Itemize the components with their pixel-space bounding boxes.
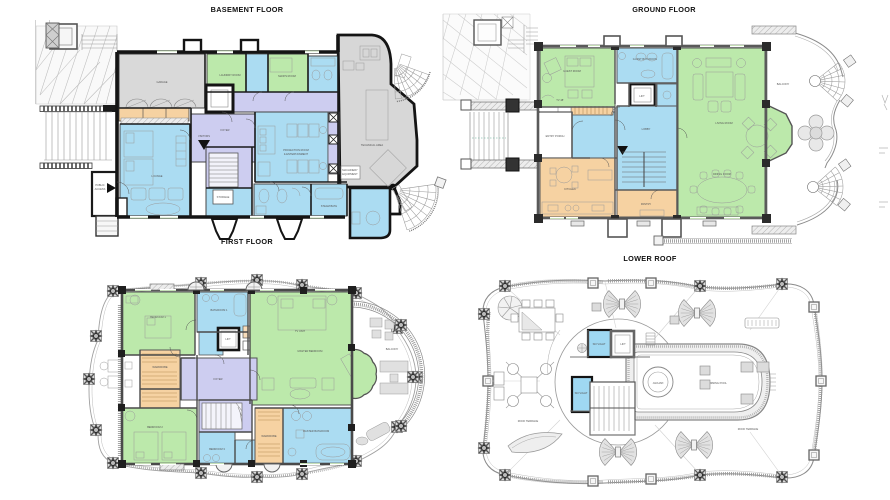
svg-text:TECHNICAL AREA: TECHNICAL AREA xyxy=(361,143,384,147)
svg-text:BATHROOM 1: BATHROOM 1 xyxy=(211,308,229,312)
svg-text:GROUND FLOOR: GROUND FLOOR xyxy=(632,5,696,14)
svg-text:GUEST ROOM: GUEST ROOM xyxy=(563,69,581,73)
svg-text:LOBBY: LOBBY xyxy=(642,127,651,131)
svg-text:ENTRY PORCH: ENTRY PORCH xyxy=(546,134,565,138)
svg-text:PANTRY: PANTRY xyxy=(641,202,652,206)
svg-text:KITCHEN: KITCHEN xyxy=(564,187,576,191)
svg-text:MASTER BATHROOM: MASTER BATHROOM xyxy=(303,429,329,433)
svg-text:SKYLIGHT: SKYLIGHT xyxy=(575,391,588,395)
svg-text:STORAGE: STORAGE xyxy=(217,195,230,199)
svg-text:ACCESS: ACCESS xyxy=(95,187,106,191)
svg-text:SKYLIGHT: SKYLIGHT xyxy=(593,342,606,346)
svg-text:TV 48': TV 48' xyxy=(556,98,564,102)
svg-text:LAUNDRY ROOM: LAUNDRY ROOM xyxy=(219,73,240,77)
svg-text:VISITORS: VISITORS xyxy=(198,134,210,138)
svg-text:WARDROBE: WARDROBE xyxy=(152,365,167,369)
svg-text:MAID'S ROOM: MAID'S ROOM xyxy=(278,74,296,78)
svg-text:ROOF TERRACE: ROOF TERRACE xyxy=(518,419,539,423)
svg-text:TV UNIT: TV UNIT xyxy=(295,329,306,333)
svg-text:& ENTERTAINMENT: & ENTERTAINMENT xyxy=(284,152,309,156)
svg-text:JACUZZI: JACUZZI xyxy=(653,381,664,385)
svg-text:BEDROOM 2: BEDROOM 2 xyxy=(147,425,163,429)
svg-text:PROJECTION ROOM: PROJECTION ROOM xyxy=(283,148,309,152)
svg-text:BEDROOM 3: BEDROOM 3 xyxy=(209,447,225,451)
svg-text:MACHINERY: MACHINERY xyxy=(342,168,358,172)
svg-text:BALCONY: BALCONY xyxy=(386,347,399,351)
svg-text:EQUIPMENT: EQUIPMENT xyxy=(342,172,358,176)
svg-text:ROOF TERRACE: ROOF TERRACE xyxy=(738,427,759,431)
svg-text:PUBLIC: PUBLIC xyxy=(95,183,104,187)
svg-text:DINING ROOM: DINING ROOM xyxy=(713,172,731,176)
svg-text:BEDROOM 1: BEDROOM 1 xyxy=(150,315,166,319)
svg-text:WARDROBE: WARDROBE xyxy=(261,434,276,438)
svg-text:FOYER: FOYER xyxy=(221,128,230,132)
svg-text:GARAGE: GARAGE xyxy=(156,80,167,84)
svg-text:LIFT: LIFT xyxy=(225,337,231,341)
svg-text:MASTER BEDROOM: MASTER BEDROOM xyxy=(298,349,323,353)
svg-text:LIFT: LIFT xyxy=(639,94,645,98)
svg-text:BALCONY: BALCONY xyxy=(777,82,790,86)
svg-text:LOWER ROOF: LOWER ROOF xyxy=(623,254,677,263)
svg-text:BASEMENT FLOOR: BASEMENT FLOOR xyxy=(211,5,284,14)
svg-text:FOYER: FOYER xyxy=(214,377,223,381)
svg-text:STEAM BATH: STEAM BATH xyxy=(321,204,338,208)
svg-text:LIFT: LIFT xyxy=(620,342,626,346)
svg-text:LIVING ROOM: LIVING ROOM xyxy=(715,121,732,125)
